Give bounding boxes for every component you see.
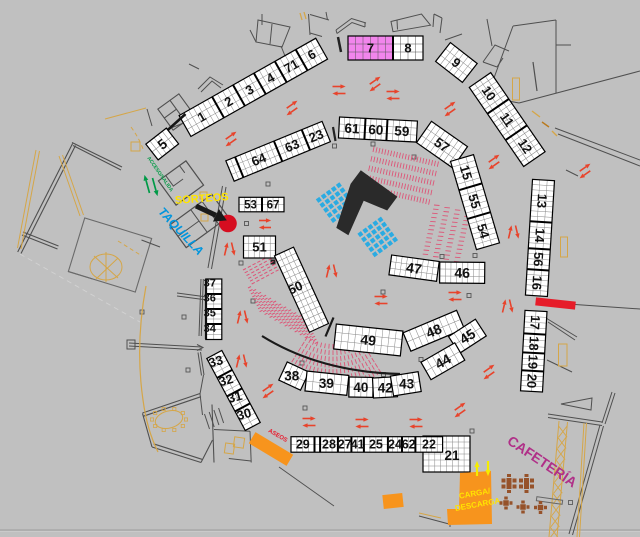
- svg-text:14: 14: [532, 228, 548, 244]
- svg-text:13: 13: [534, 193, 550, 208]
- svg-text:56: 56: [531, 252, 547, 267]
- svg-text:28: 28: [322, 437, 336, 451]
- svg-text:49: 49: [360, 331, 377, 349]
- svg-text:67: 67: [267, 200, 280, 212]
- svg-text:43: 43: [399, 377, 415, 392]
- svg-text:7: 7: [367, 41, 374, 56]
- svg-text:61: 61: [344, 121, 360, 137]
- svg-text:39: 39: [319, 376, 334, 391]
- svg-text:38: 38: [284, 369, 300, 384]
- svg-text:51: 51: [252, 240, 266, 255]
- svg-text:16: 16: [529, 275, 545, 290]
- svg-text:25: 25: [369, 437, 383, 451]
- svg-text:42: 42: [378, 380, 393, 395]
- svg-text:18: 18: [526, 336, 542, 351]
- svg-text:59: 59: [394, 123, 410, 139]
- svg-text:8: 8: [404, 41, 411, 56]
- svg-text:62: 62: [402, 437, 416, 451]
- svg-text:27: 27: [338, 437, 352, 451]
- svg-text:19: 19: [525, 354, 541, 369]
- svg-text:60: 60: [368, 122, 384, 138]
- svg-text:17: 17: [527, 315, 543, 330]
- svg-text:22: 22: [422, 437, 436, 451]
- svg-text:41: 41: [351, 437, 365, 451]
- svg-text:40: 40: [353, 380, 368, 395]
- svg-text:21: 21: [444, 448, 460, 463]
- svg-text:47: 47: [405, 259, 423, 277]
- svg-text:24: 24: [388, 437, 402, 451]
- svg-text:20: 20: [524, 373, 540, 388]
- svg-text:29: 29: [296, 437, 310, 451]
- svg-text:53: 53: [244, 200, 257, 212]
- svg-text:46: 46: [454, 265, 470, 281]
